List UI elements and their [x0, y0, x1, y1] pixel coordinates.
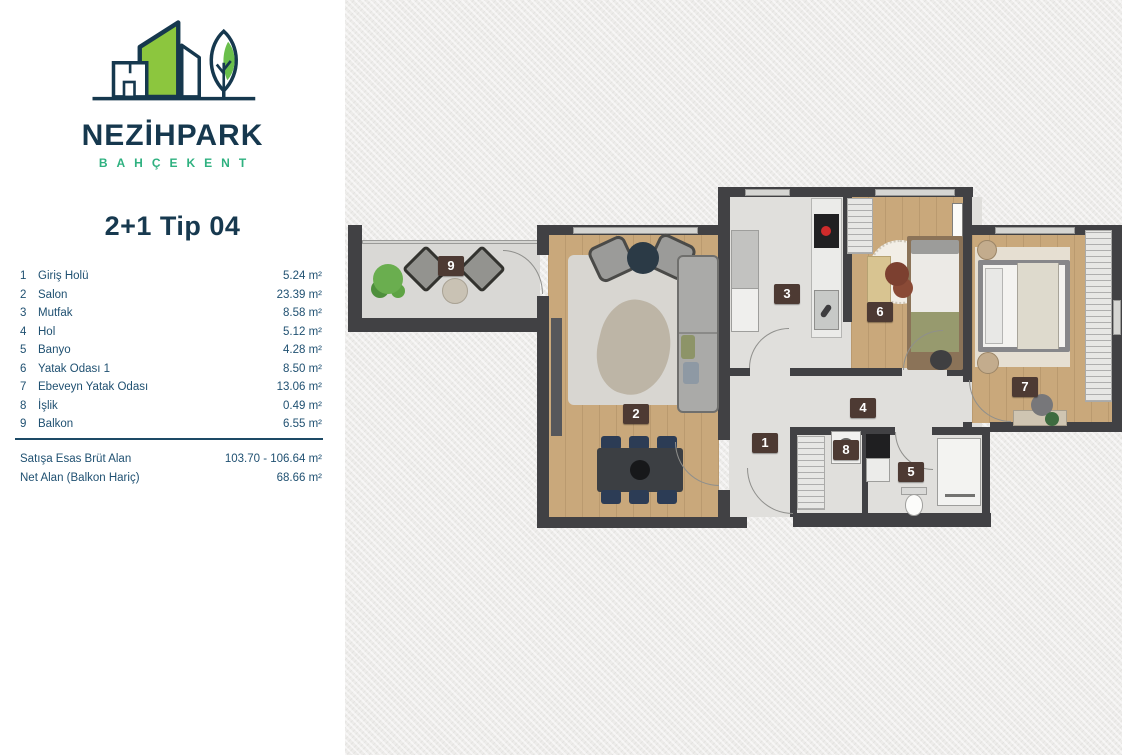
- room-area: 6.55 m²: [283, 415, 322, 434]
- table-divider: [15, 438, 323, 440]
- table-row: 4 Hol 5.12 m²: [20, 323, 322, 342]
- table-row: 9 Balkon 6.55 m²: [20, 415, 322, 434]
- brand-logo-icon: [68, 10, 278, 112]
- room-plan-label-2: 2: [623, 404, 649, 424]
- info-panel: NEZİHPARK BAHÇEKENT 2+1 Tip 04 1 Giriş H…: [0, 0, 345, 755]
- table-row: 3 Mutfak 8.58 m²: [20, 304, 322, 323]
- room-number: 6: [20, 360, 38, 379]
- room-number: 8: [20, 397, 38, 416]
- room-area: 23.39 m²: [277, 286, 322, 305]
- brand-subtitle: BAHÇEKENT: [0, 156, 345, 170]
- room-plan-label-9: 9: [438, 256, 464, 276]
- table-row: 6 Yatak Odası 1 8.50 m²: [20, 360, 322, 379]
- summary-row: Satışa Esas Brüt Alan 103.70 - 106.64 m²: [20, 450, 322, 469]
- room-area: 8.58 m²: [283, 304, 322, 323]
- table-row: 1 Giriş Holü 5.24 m²: [20, 267, 322, 286]
- room-plan-label-1: 1: [752, 433, 778, 453]
- table-row: 8 İşlik 0.49 m²: [20, 397, 322, 416]
- room-number: 2: [20, 286, 38, 305]
- room-plan-label-8: 8: [833, 440, 859, 460]
- room-number: 3: [20, 304, 38, 323]
- room-name: Ebeveyn Yatak Odası: [38, 378, 277, 397]
- room-area: 4.28 m²: [283, 341, 322, 360]
- room-plan-label-6: 6: [867, 302, 893, 322]
- room-name: İşlik: [38, 397, 283, 416]
- room-number: 1: [20, 267, 38, 286]
- room-area: 0.49 m²: [283, 397, 322, 416]
- summary-label: Net Alan (Balkon Hariç): [20, 469, 277, 488]
- room-name: Banyo: [38, 341, 283, 360]
- summary-label: Satışa Esas Brüt Alan: [20, 450, 225, 469]
- room-area: 5.12 m²: [283, 323, 322, 342]
- room-number: 7: [20, 378, 38, 397]
- room-name: Balkon: [38, 415, 283, 434]
- brand-logo: NEZİHPARK BAHÇEKENT: [0, 10, 345, 170]
- unit-type-title: 2+1 Tip 04: [0, 211, 345, 242]
- floorplan-brochure-page: NEZİHPARK BAHÇEKENT 2+1 Tip 04 1 Giriş H…: [0, 0, 1122, 755]
- plan-background: 1 2 3 4 5 6 7 8 9: [345, 0, 1122, 755]
- room-plan-label-7: 7: [1012, 377, 1038, 397]
- room-area-table: 1 Giriş Holü 5.24 m² 2 Salon 23.39 m² 3 …: [20, 267, 322, 434]
- room-labels: 1 2 3 4 5 6 7 8 9: [345, 0, 1122, 755]
- room-number: 5: [20, 341, 38, 360]
- floor-plan: 1 2 3 4 5 6 7 8 9: [345, 0, 1122, 755]
- room-name: Hol: [38, 323, 283, 342]
- room-plan-label-3: 3: [774, 284, 800, 304]
- room-plan-label-4: 4: [850, 398, 876, 418]
- room-name: Salon: [38, 286, 277, 305]
- room-number: 4: [20, 323, 38, 342]
- room-name: Yatak Odası 1: [38, 360, 283, 379]
- room-area: 13.06 m²: [277, 378, 322, 397]
- summary-row: Net Alan (Balkon Hariç) 68.66 m²: [20, 469, 322, 488]
- table-row: 5 Banyo 4.28 m²: [20, 341, 322, 360]
- summary-value: 103.70 - 106.64 m²: [225, 450, 322, 469]
- room-name: Mutfak: [38, 304, 283, 323]
- brand-name: NEZİHPARK: [0, 119, 345, 153]
- room-number: 9: [20, 415, 38, 434]
- room-area: 8.50 m²: [283, 360, 322, 379]
- table-row: 7 Ebeveyn Yatak Odası 13.06 m²: [20, 378, 322, 397]
- table-row: 2 Salon 23.39 m²: [20, 286, 322, 305]
- area-summary: Satışa Esas Brüt Alan 103.70 - 106.64 m²…: [20, 450, 322, 487]
- summary-value: 68.66 m²: [277, 469, 322, 488]
- room-name: Giriş Holü: [38, 267, 283, 286]
- room-area: 5.24 m²: [283, 267, 322, 286]
- room-plan-label-5: 5: [898, 462, 924, 482]
